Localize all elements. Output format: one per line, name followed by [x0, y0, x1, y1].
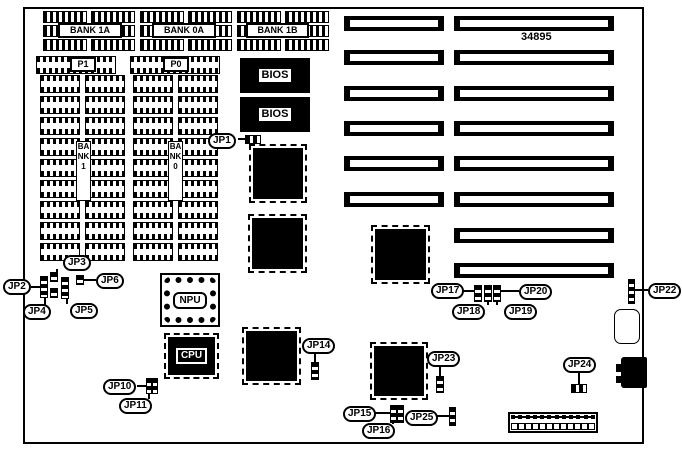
dip-socket: [178, 222, 218, 240]
power-socket: [574, 423, 581, 430]
dip-socket: [140, 39, 184, 51]
jumper-label-jp11: JP11: [119, 398, 152, 414]
dip-socket: [178, 180, 218, 198]
motherboard-diagram: 34895 BANK 1A BANK 0A BANK 1B P1 P0 BANK…: [0, 0, 682, 454]
jumper-label-jp25: JP25: [405, 410, 438, 426]
power-socket: [546, 423, 553, 430]
bank-0a-label: BANK 0A: [152, 23, 216, 38]
dip-socket: [178, 201, 218, 219]
dip-socket: [178, 75, 218, 93]
jp2-pins: [40, 276, 48, 298]
dip-socket: [133, 117, 173, 135]
dip-socket: [133, 75, 173, 93]
jumper-label-jp14: JP14: [302, 338, 335, 354]
dip-socket: [133, 201, 173, 219]
dip-socket: [178, 243, 218, 261]
keyboard-connector-tab: [616, 364, 622, 372]
ic-chip-5: [374, 346, 424, 396]
dip-socket: [40, 96, 80, 114]
jumper-label-jp23: JP23: [427, 351, 460, 367]
jumper-label-jp24: JP24: [563, 357, 596, 373]
power-socket: [553, 423, 560, 430]
power-pin: [576, 415, 580, 419]
pointer-line: [137, 385, 146, 387]
power-socket: [567, 423, 574, 430]
jumper-label-jp15: JP15: [343, 406, 376, 422]
connector-p1-label: P1: [70, 57, 96, 72]
power-connector-sockets: [511, 423, 595, 430]
isa-slot-segment: [454, 263, 614, 278]
dip-socket: [85, 180, 125, 198]
dip-socket: [133, 222, 173, 240]
jp17-pins: [474, 285, 482, 302]
din-connector-outline: [614, 309, 640, 344]
jp25-pins: [449, 407, 456, 426]
isa-slot-segment: [344, 192, 444, 207]
jp15-pins: [390, 405, 397, 423]
dip-socket: [133, 138, 173, 156]
jumper-label-jp20: JP20: [519, 284, 552, 300]
jumper-label-jp2: JP2: [3, 279, 31, 295]
dip-socket: [40, 117, 80, 135]
power-pin: [526, 415, 530, 419]
dip-socket: [237, 11, 281, 23]
dip-socket: [40, 75, 80, 93]
jp1-pins: [245, 135, 261, 144]
power-pin: [533, 415, 537, 419]
isa-slot-segment: [344, 121, 444, 136]
jp22-pins: [628, 279, 635, 304]
isa-slot-segment: [454, 50, 614, 65]
bank-0-vertical-label: BANK 0: [168, 141, 183, 201]
jumper-label-jp19: JP19: [504, 304, 537, 320]
jp18-pins: [484, 285, 492, 302]
ic-chip-1: [253, 148, 303, 199]
jumper-label-jp22: JP22: [648, 283, 681, 299]
dip-socket: [133, 180, 173, 198]
isa-slot-segment: [344, 16, 444, 31]
power-pin: [518, 415, 522, 419]
isa-slot-segment: [454, 121, 614, 136]
jumper-label-jp18: JP18: [452, 304, 485, 320]
dip-socket: [85, 75, 125, 93]
dip-socket: [140, 11, 184, 23]
power-socket: [539, 423, 546, 430]
bios-chip-top: BIOS: [240, 58, 310, 93]
dip-socket: [40, 138, 80, 156]
jp10-pins: [152, 378, 158, 394]
power-pin: [562, 415, 566, 419]
dip-socket: [85, 243, 125, 261]
jumper-label-jp10: JP10: [103, 379, 136, 395]
bios-chip-top-label: BIOS: [258, 68, 293, 83]
dip-socket: [43, 11, 87, 23]
jp3-pins: [50, 272, 58, 282]
dip-socket: [133, 159, 173, 177]
power-pin: [584, 415, 588, 419]
dip-socket: [188, 11, 232, 23]
dip-socket: [40, 159, 80, 177]
dip-socket: [91, 11, 135, 23]
bios-chip-bottom-label: BIOS: [258, 107, 293, 122]
bank-1a-label: BANK 1A: [58, 23, 122, 38]
cpu-chip: CPU: [168, 337, 215, 375]
power-socket: [588, 423, 595, 430]
dip-socket: [285, 39, 329, 51]
dip-socket: [85, 117, 125, 135]
jumper-label-jp1: JP1: [208, 133, 236, 149]
dip-socket: [85, 222, 125, 240]
jp6-pins: [76, 275, 84, 285]
ic-chip-4: [246, 331, 297, 381]
jp15-pins: [397, 405, 404, 423]
npu-socket: NPU: [160, 273, 220, 327]
jumper-label-jp17: JP17: [431, 283, 464, 299]
jp5-pins: [61, 277, 69, 299]
power-pin: [591, 415, 595, 419]
part-number: 34895: [521, 31, 552, 43]
power-socket: [560, 423, 567, 430]
jp14-pins: [311, 362, 319, 380]
dip-socket: [91, 39, 135, 51]
pointer-line: [375, 412, 390, 414]
power-connector-pins: [511, 415, 595, 419]
dip-socket: [285, 11, 329, 23]
isa-slot-segment: [454, 192, 614, 207]
jumper-label-jp4: JP4: [23, 304, 51, 320]
pointer-line: [148, 394, 150, 399]
dip-socket: [40, 180, 80, 198]
bank-1b-label: BANK 1B: [246, 23, 309, 38]
power-socket: [532, 423, 539, 430]
power-pin: [540, 415, 544, 419]
jp24-pins: [571, 384, 587, 393]
dip-socket: [85, 159, 125, 177]
pointer-line: [501, 290, 519, 292]
dip-socket: [40, 222, 80, 240]
dip-socket: [85, 96, 125, 114]
dip-socket: [178, 159, 218, 177]
ic-chip-2: [252, 218, 303, 269]
dip-socket: [85, 201, 125, 219]
pointer-line: [437, 415, 449, 417]
jp19-pins: [493, 285, 501, 302]
pointer-line: [635, 289, 648, 291]
isa-slot-segment: [454, 156, 614, 171]
bank-1-vertical-label: BANK 1: [76, 141, 91, 201]
jumper-label-jp16: JP16: [362, 423, 395, 439]
power-pin: [511, 415, 515, 419]
dip-socket: [133, 96, 173, 114]
dip-socket: [237, 39, 281, 51]
pointer-line: [84, 279, 96, 281]
isa-slot-segment: [454, 86, 614, 101]
dip-socket: [43, 39, 87, 51]
power-pin: [555, 415, 559, 419]
jp23-pins: [436, 376, 444, 393]
jumper-label-jp6: JP6: [96, 273, 124, 289]
connector-p0-label: P0: [163, 57, 189, 72]
keyboard-connector-tab: [616, 376, 622, 383]
power-socket: [581, 423, 588, 430]
dip-socket: [178, 117, 218, 135]
keyboard-connector: [621, 357, 647, 388]
dip-socket: [133, 243, 173, 261]
pointer-line: [66, 299, 68, 304]
isa-slot-segment: [344, 156, 444, 171]
bios-chip-bottom: BIOS: [240, 97, 310, 132]
isa-slot-segment: [454, 228, 614, 243]
power-socket: [525, 423, 532, 430]
dip-socket: [85, 138, 125, 156]
jumper-label-jp5: JP5: [70, 303, 98, 319]
power-pin: [547, 415, 551, 419]
ic-chip-3: [375, 229, 426, 280]
power-connector: [508, 412, 598, 433]
power-socket: [518, 423, 525, 430]
isa-slot-segment: [344, 50, 444, 65]
isa-slot-segment: [344, 86, 444, 101]
dip-socket: [188, 39, 232, 51]
npu-label: NPU: [173, 292, 206, 309]
jp3-pins: [50, 288, 58, 298]
isa-slot-segment: [454, 16, 614, 31]
power-socket: [511, 423, 518, 430]
jumper-label-jp3: JP3: [63, 255, 91, 271]
dip-socket: [178, 96, 218, 114]
dip-socket: [40, 201, 80, 219]
cpu-label: CPU: [176, 348, 207, 364]
power-pin: [569, 415, 573, 419]
